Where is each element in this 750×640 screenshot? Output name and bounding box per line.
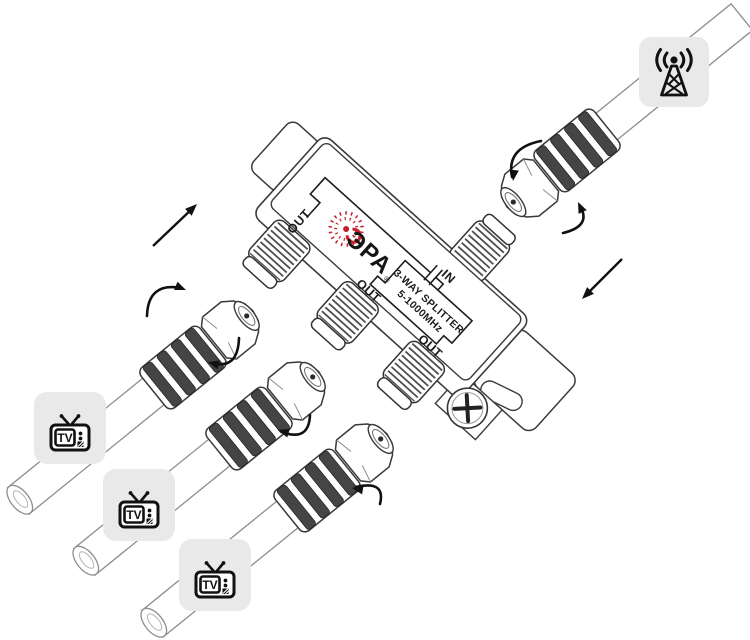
splitter-installation-diagram: ЭРА ® OUT OUT OUT IN 3-WAY SPLITTER 5-10… — [0, 0, 750, 640]
tv-label: TV — [202, 578, 217, 592]
tv-label: TV — [126, 508, 141, 522]
rotation-arrow-connector1-top — [147, 282, 188, 316]
rotation-arrow-antenna-connector-right — [563, 200, 587, 233]
tv-icon-2: TV — [103, 469, 175, 541]
tv-icon-3: TV — [179, 539, 251, 611]
antenna-icon — [639, 37, 709, 107]
tv-label: TV — [57, 431, 72, 445]
tv-icon-1: TV — [34, 392, 106, 464]
direction-arrow-down — [579, 259, 622, 302]
direction-arrow-up — [153, 201, 200, 246]
rotation-arrow-connector3 — [351, 484, 381, 504]
antenna-coax-cable — [490, 0, 750, 228]
diagram-canvas: ЭРА ® OUT OUT OUT IN 3-WAY SPLITTER 5-10… — [0, 0, 750, 640]
